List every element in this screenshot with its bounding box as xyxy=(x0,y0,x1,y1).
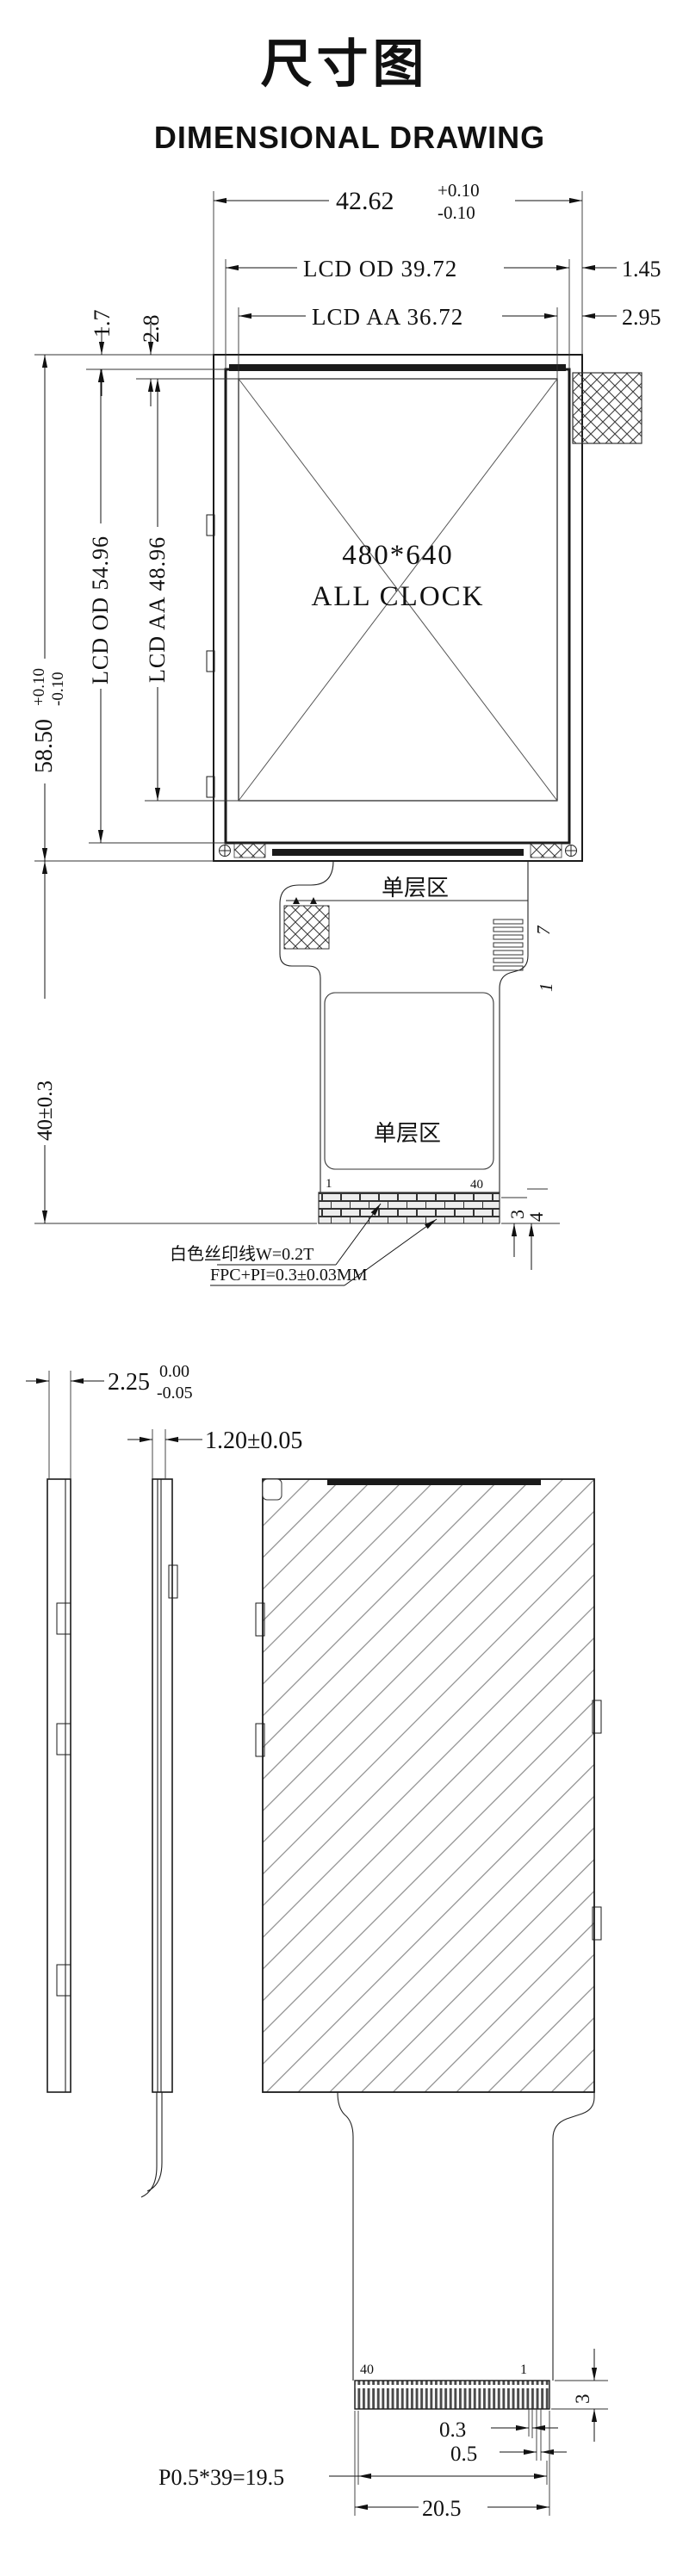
dim-pad-width: 0.3 xyxy=(439,2418,466,2442)
dim-overall-width-tol-plus: +0.10 xyxy=(438,180,480,201)
back-corner-pad xyxy=(263,1479,282,1500)
dim-od-side-margin: 1.45 xyxy=(622,257,661,282)
back-view-body xyxy=(263,1479,594,2092)
dim-pad-pitch: 0.5 xyxy=(450,2443,477,2466)
dim-total-thickness-tol-minus: -0.05 xyxy=(157,1384,193,1403)
pad-number-last: 7 xyxy=(533,925,554,935)
product-label: ALL CLOCK xyxy=(311,581,484,612)
page-subtitle: DIMENSIONAL DRAWING xyxy=(154,120,545,155)
dim-lcd-od-width: LCD OD 39.72 xyxy=(303,256,457,282)
fpc-test-pads xyxy=(493,920,523,970)
dim-stiffener-4: 4 xyxy=(525,1212,547,1222)
front-view: 480*640 ALL CLOCK 单层区 xyxy=(30,180,661,1285)
single-layer-lower-label: 单层区 xyxy=(374,1121,441,1146)
dim-connector-height: 3 xyxy=(572,2394,593,2405)
dim-pitch-total: P0.5*39=19.5 xyxy=(158,2465,284,2490)
resolution-label: 480*640 xyxy=(342,540,454,571)
dim-overall-height: 58.50 xyxy=(31,719,58,773)
dim-total-thickness: 2.25 xyxy=(108,1369,150,1396)
dim-overall-width: 42.62 xyxy=(336,187,394,215)
back-pad-first-label: 1 xyxy=(520,2362,527,2377)
contact-strip xyxy=(319,1192,500,1223)
dim-od-top-margin: 1.7 xyxy=(90,310,115,338)
driver-ic-block xyxy=(284,906,329,949)
back-top-bar xyxy=(327,1479,541,1485)
alignment-mark xyxy=(566,845,577,857)
top-led-bar xyxy=(229,364,566,371)
callout-fpc: FPC+PI=0.3±0.03MM xyxy=(210,1266,368,1285)
fpc-tail: 单层区 7 1 单层区 1 40 xyxy=(280,861,556,1223)
side-tab xyxy=(169,1565,177,1598)
dim-fpc-length: 40±0.3 xyxy=(34,1081,57,1141)
callout-silkscreen: 白色丝印线W=0.2T xyxy=(170,1244,313,1264)
dimensional-drawing-page: 尺寸图 DIMENSIONAL DRAWING 480*640 ALL CLOC… xyxy=(0,0,689,2576)
dim-aa-top-margin: 2.8 xyxy=(139,315,164,344)
side-view-panel xyxy=(152,1479,172,2092)
bottom-driver-bar xyxy=(272,849,524,856)
back-fpc-edge-right xyxy=(553,2092,594,2381)
alignment-mark xyxy=(220,845,231,857)
dim-connector-width: 20.5 xyxy=(422,2496,462,2521)
dim-lcd-aa-height: LCD AA 48.96 xyxy=(145,536,170,683)
dimensional-drawing-svg: 尺寸图 DIMENSIONAL DRAWING 480*640 ALL CLOC… xyxy=(0,0,689,2576)
side-tab xyxy=(57,1603,71,1634)
dim-lcd-aa-width: LCD AA 36.72 xyxy=(312,304,463,330)
side-fpc-curl xyxy=(147,2092,162,2191)
finger-last-label: 40 xyxy=(470,1178,483,1192)
dim-lcd-od-height: LCD OD 54.96 xyxy=(88,536,113,684)
finger-first-label: 1 xyxy=(326,1177,332,1191)
dim-aa-side-margin: 2.95 xyxy=(622,305,661,330)
front-view-dimensions: 42.62 +0.10 -0.10 LCD OD 39.72 1.45 LCD … xyxy=(30,180,661,1285)
connector-fingers xyxy=(355,2381,549,2409)
side-view-module xyxy=(47,1479,71,2092)
pad-number-first: 1 xyxy=(536,983,556,993)
page-title: 尺寸图 xyxy=(261,35,429,93)
dim-overall-height-tol-plus: +0.10 xyxy=(30,668,48,706)
corner-hatch xyxy=(234,844,265,858)
profile-and-back-view: 40 1 2.25 0.00 -0.05 1.20±0.05 xyxy=(26,1362,608,2521)
back-fpc-edge-left xyxy=(338,2092,353,2381)
side-fpc-curl xyxy=(141,2092,157,2197)
dim-overall-width-tol-minus: -0.10 xyxy=(438,202,475,223)
tape-block-hatched xyxy=(573,373,642,443)
back-pad-last-label: 40 xyxy=(360,2362,374,2377)
dim-overall-height-tol-minus: -0.10 xyxy=(49,672,67,706)
corner-hatch xyxy=(531,844,562,858)
side-tab xyxy=(57,1965,71,1996)
side-tab xyxy=(57,1724,71,1755)
single-layer-upper-label: 单层区 xyxy=(382,876,449,901)
dim-total-thickness-tol-plus: 0.00 xyxy=(159,1362,189,1381)
dim-panel-thickness: 1.20±0.05 xyxy=(205,1427,302,1454)
